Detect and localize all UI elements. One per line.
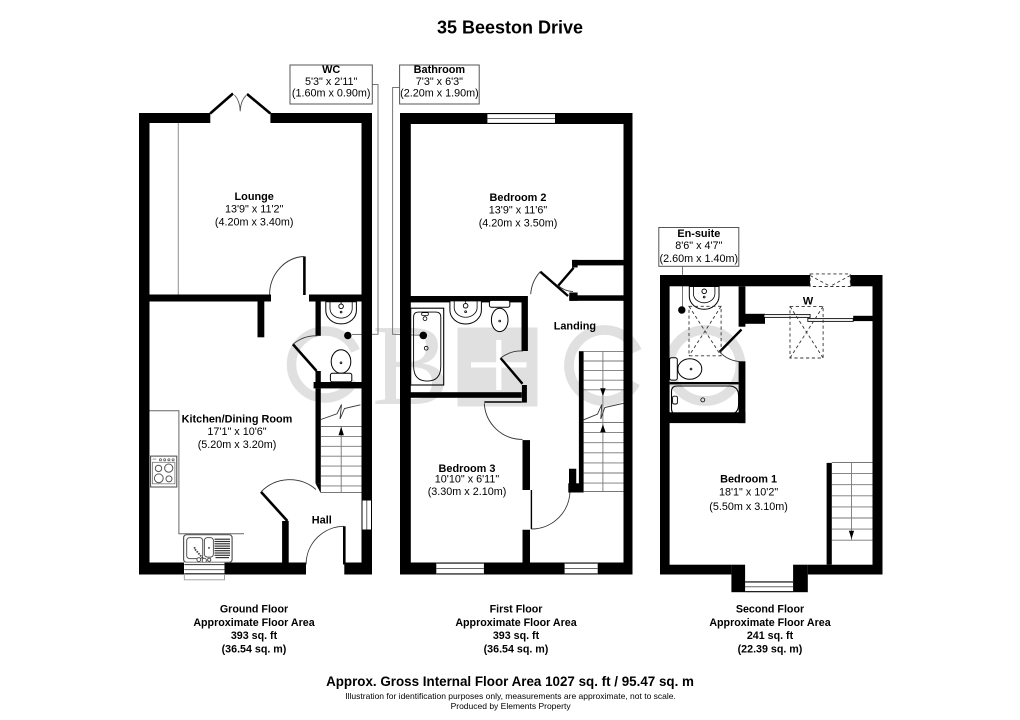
svg-text:Bedroom 2: Bedroom 2 — [490, 192, 547, 204]
svg-text:7'3" x 6'3": 7'3" x 6'3" — [416, 76, 463, 88]
svg-text:W: W — [803, 295, 814, 307]
svg-text:Approximate Floor Area: Approximate Floor Area — [455, 617, 577, 629]
svg-text:Lounge: Lounge — [235, 191, 274, 203]
svg-text:35 Beeston Drive: 35 Beeston Drive — [437, 18, 583, 38]
svg-text:Approximate Floor Area: Approximate Floor Area — [193, 617, 315, 629]
svg-text:Illustration for identificatio: Illustration for identification purposes… — [345, 691, 676, 701]
svg-text:10'10" x 6'11": 10'10" x 6'11" — [435, 474, 500, 486]
svg-text:13'9" x 11'2": 13'9" x 11'2" — [225, 204, 284, 216]
svg-text:First Floor: First Floor — [490, 603, 543, 615]
svg-text:8'6" x 4'7": 8'6" x 4'7" — [675, 240, 722, 252]
svg-text:(36.54 sq. m): (36.54 sq. m) — [222, 643, 287, 655]
svg-text:Approx. Gross Internal Floor A: Approx. Gross Internal Floor Area 1027 s… — [326, 674, 694, 689]
svg-text:En-suite: En-suite — [677, 228, 720, 240]
svg-text:WC: WC — [322, 64, 340, 76]
svg-text:13'9" x 11'6": 13'9" x 11'6" — [489, 205, 548, 217]
svg-text:Produced by Elements Property: Produced by Elements Property — [451, 701, 572, 711]
svg-text:(22.39 sq. m): (22.39 sq. m) — [738, 643, 803, 655]
svg-text:393 sq. ft: 393 sq. ft — [231, 630, 278, 642]
svg-text:18'1" x 10'2": 18'1" x 10'2" — [719, 487, 778, 499]
svg-text:(3.30m x 2.10m): (3.30m x 2.10m) — [428, 486, 507, 498]
svg-text:393 sq. ft: 393 sq. ft — [493, 630, 540, 642]
svg-text:Ground Floor: Ground Floor — [220, 603, 288, 615]
svg-text:(1.60m x 0.90m): (1.60m x 0.90m) — [292, 87, 371, 99]
svg-text:(4.20m x 3.50m): (4.20m x 3.50m) — [479, 218, 558, 230]
svg-text:5'3" x 2'11": 5'3" x 2'11" — [305, 76, 358, 88]
svg-text:(2.20m x 1.90m): (2.20m x 1.90m) — [400, 87, 479, 99]
svg-text:17'1" x 10'6": 17'1" x 10'6" — [207, 426, 266, 438]
svg-text:241 sq. ft: 241 sq. ft — [747, 630, 794, 642]
svg-text:(2.60m x 1.40m): (2.60m x 1.40m) — [659, 253, 738, 265]
svg-text:(36.54 sq. m): (36.54 sq. m) — [484, 643, 549, 655]
svg-text:Kitchen/Dining Room: Kitchen/Dining Room — [182, 413, 293, 425]
svg-text:Approximate Floor Area: Approximate Floor Area — [709, 617, 831, 629]
svg-text:(5.50m x 3.10m): (5.50m x 3.10m) — [709, 501, 788, 513]
svg-text:Hall: Hall — [312, 515, 332, 527]
svg-text:(4.20m x 3.40m): (4.20m x 3.40m) — [215, 217, 294, 229]
svg-text:Bathroom: Bathroom — [414, 64, 466, 76]
svg-text:Second Floor: Second Floor — [736, 603, 804, 615]
svg-text:Bedroom 1: Bedroom 1 — [720, 474, 777, 486]
svg-text:Landing: Landing — [554, 321, 596, 333]
svg-text:(5.20m x 3.20m): (5.20m x 3.20m) — [198, 439, 277, 451]
